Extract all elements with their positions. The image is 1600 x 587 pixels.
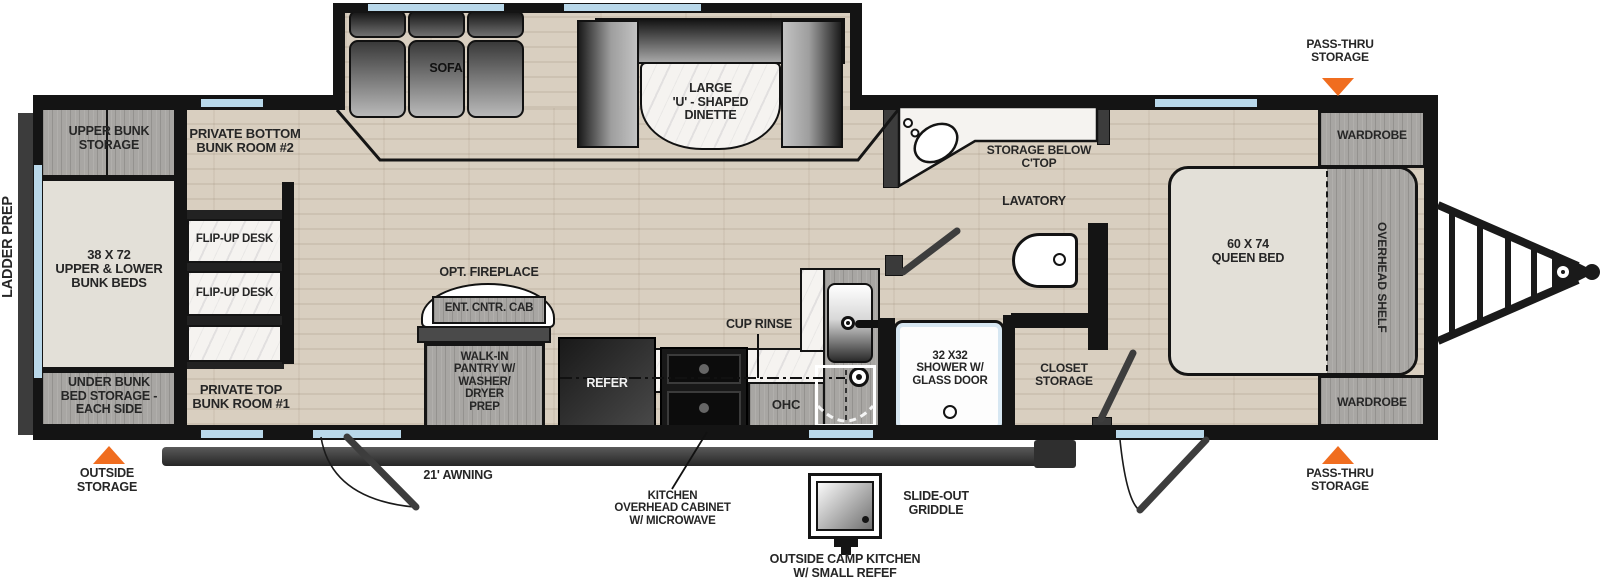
ent-cntr-cab-label: ENT. CNTR. CAB bbox=[434, 302, 544, 314]
wall-bunkroom-partition bbox=[282, 182, 294, 364]
bunk-frame-bar bbox=[185, 263, 284, 271]
under-bunk-storage-label: UNDER BUNK BED STORAGE - EACH SIDE bbox=[48, 376, 170, 417]
griddle-knob bbox=[862, 516, 869, 523]
overhead-shelf-label: OVERHEAD SHELF bbox=[1352, 195, 1388, 360]
toilet-flush-button bbox=[1053, 253, 1066, 266]
floor-plan: LADDER PREP UPPER BUNK STORAGE PRIVATE B… bbox=[0, 0, 1600, 587]
awning-rail bbox=[162, 447, 1073, 466]
shower-label: 32 X32 SHOWER W/ GLASS DOOR bbox=[905, 350, 995, 387]
slideout-wall-left bbox=[333, 3, 345, 110]
sofa-seat-cushion bbox=[467, 40, 524, 118]
ent-center-counter bbox=[417, 326, 551, 343]
outside-camp-kitchen-label: OUTSIDE CAMP KITCHEN W/ SMALL REFEF bbox=[740, 553, 950, 580]
closet-storage-label: CLOSET STORAGE bbox=[1022, 362, 1106, 388]
stove-burner bbox=[699, 403, 709, 413]
sofa-back-cushion bbox=[467, 10, 524, 38]
toilet bbox=[1012, 233, 1078, 288]
slide-out-griddle-label: SLIDE-OUT GRIDDLE bbox=[888, 490, 984, 517]
bunk-frame-bar bbox=[185, 210, 284, 219]
door-swing-arc bbox=[1120, 440, 1138, 509]
private-bottom-bunk-room-label: PRIVATE BOTTOM BUNK ROOM #2 bbox=[175, 127, 315, 155]
bath-door-hinge bbox=[885, 255, 903, 276]
outside-storage-arrow-icon bbox=[93, 446, 125, 464]
wall-bath-bedroom bbox=[1088, 223, 1108, 350]
tongue-a-frame bbox=[1438, 205, 1578, 341]
wall-top-right bbox=[862, 95, 1434, 110]
hitch-coupler-hole bbox=[1557, 266, 1569, 278]
flip-up-desk-lower-label: FLIP-UP DESK bbox=[187, 287, 282, 299]
sofa-back-cushion bbox=[408, 10, 465, 38]
dinette-bench-right bbox=[781, 20, 843, 148]
sofa-seat-cushion bbox=[349, 40, 406, 118]
bunk-frame-bar bbox=[185, 362, 284, 369]
wardrobe-front-label: WARDROBE bbox=[1320, 396, 1424, 409]
window-bunkroom2 bbox=[200, 98, 264, 108]
faucet bbox=[841, 316, 855, 330]
entry-door-bunkroom-glass bbox=[312, 429, 402, 439]
window-dinette bbox=[563, 3, 702, 12]
pass-thru-storage-top-label: PASS-THRU STORAGE bbox=[1297, 38, 1383, 64]
entry-step bbox=[1034, 440, 1076, 468]
private-top-bunk-room-label: PRIVATE TOP BUNK ROOM #1 bbox=[178, 383, 304, 411]
outside-camp-kitchen-outline bbox=[815, 365, 876, 427]
bunk-frame-bar bbox=[185, 316, 284, 325]
wardrobe-rear-label: WARDROBE bbox=[1320, 129, 1424, 142]
vanity-end-wall bbox=[883, 105, 899, 188]
wall-shower-right bbox=[1003, 315, 1015, 433]
shower-drain bbox=[943, 405, 957, 419]
hitch-coupler-pin bbox=[1561, 270, 1565, 274]
counter-end-wall bbox=[1097, 105, 1110, 145]
hitch-ball-icon bbox=[1584, 264, 1600, 280]
pass-thru-arrow-top-icon bbox=[1322, 78, 1354, 96]
outside-storage-label: OUTSIDE STORAGE bbox=[62, 467, 152, 494]
pass-thru-arrow-bottom-icon bbox=[1322, 446, 1354, 464]
slideout-wall-right bbox=[850, 3, 862, 110]
sofa-label: SOFA bbox=[414, 62, 478, 76]
window-camp-kitchen bbox=[808, 429, 874, 439]
pass-thru-storage-bottom-label: PASS-THRU STORAGE bbox=[1297, 467, 1383, 493]
door-panel-bedroom bbox=[1140, 440, 1206, 510]
bed-head-divider bbox=[1326, 171, 1328, 371]
kitchen-overhead-cabinet-label: KITCHEN OVERHEAD CABINET W/ MICROWAVE bbox=[600, 490, 745, 527]
window-rear bbox=[34, 165, 42, 378]
dinette-label: LARGE 'U' - SHAPED DINETTE bbox=[648, 82, 773, 123]
opt-fireplace-label: OPT. FIREPLACE bbox=[417, 266, 561, 280]
sofa-seat-cushion bbox=[408, 40, 465, 118]
entry-door-bedroom-glass bbox=[1115, 429, 1205, 439]
queen-bed-label: 60 X 74 QUEEN BED bbox=[1174, 238, 1322, 265]
window-bunkroom1 bbox=[200, 429, 264, 439]
dinette-bench-left bbox=[577, 20, 639, 148]
slide-out-griddle-top bbox=[816, 481, 874, 531]
hitch-coupler bbox=[1552, 250, 1596, 294]
window-bedroom bbox=[1154, 98, 1258, 108]
ohc-label: OHC bbox=[762, 398, 810, 412]
wall-bath-closet bbox=[1011, 313, 1097, 328]
cup-rinse-label: CUP RINSE bbox=[718, 318, 800, 332]
ladder-prep-label: LADDER PREP bbox=[1, 162, 21, 332]
sofa-back-cushion bbox=[349, 10, 406, 38]
lavatory-label: LAVATORY bbox=[996, 195, 1072, 209]
flip-up-desk-upper-label: FLIP-UP DESK bbox=[187, 233, 282, 245]
bunk-beds-label: 38 X 72 UPPER & LOWER BUNK BEDS bbox=[48, 248, 170, 290]
stove-burner bbox=[699, 364, 709, 374]
storage-below-ctop-label: STORAGE BELOW C'TOP bbox=[978, 144, 1100, 170]
window-sofa bbox=[367, 3, 505, 12]
bunk-step-cabinet bbox=[187, 325, 282, 362]
upper-bunk-storage-label: UPPER BUNK STORAGE bbox=[45, 125, 173, 152]
wall-front bbox=[1424, 95, 1438, 440]
awning-label: 21' AWNING bbox=[408, 469, 508, 483]
refer-label: REFER bbox=[566, 377, 648, 391]
wall-shower-left bbox=[878, 318, 895, 433]
walk-in-pantry-label: WALK-IN PANTRY W/ WASHER/ DRYER PREP bbox=[428, 351, 541, 413]
